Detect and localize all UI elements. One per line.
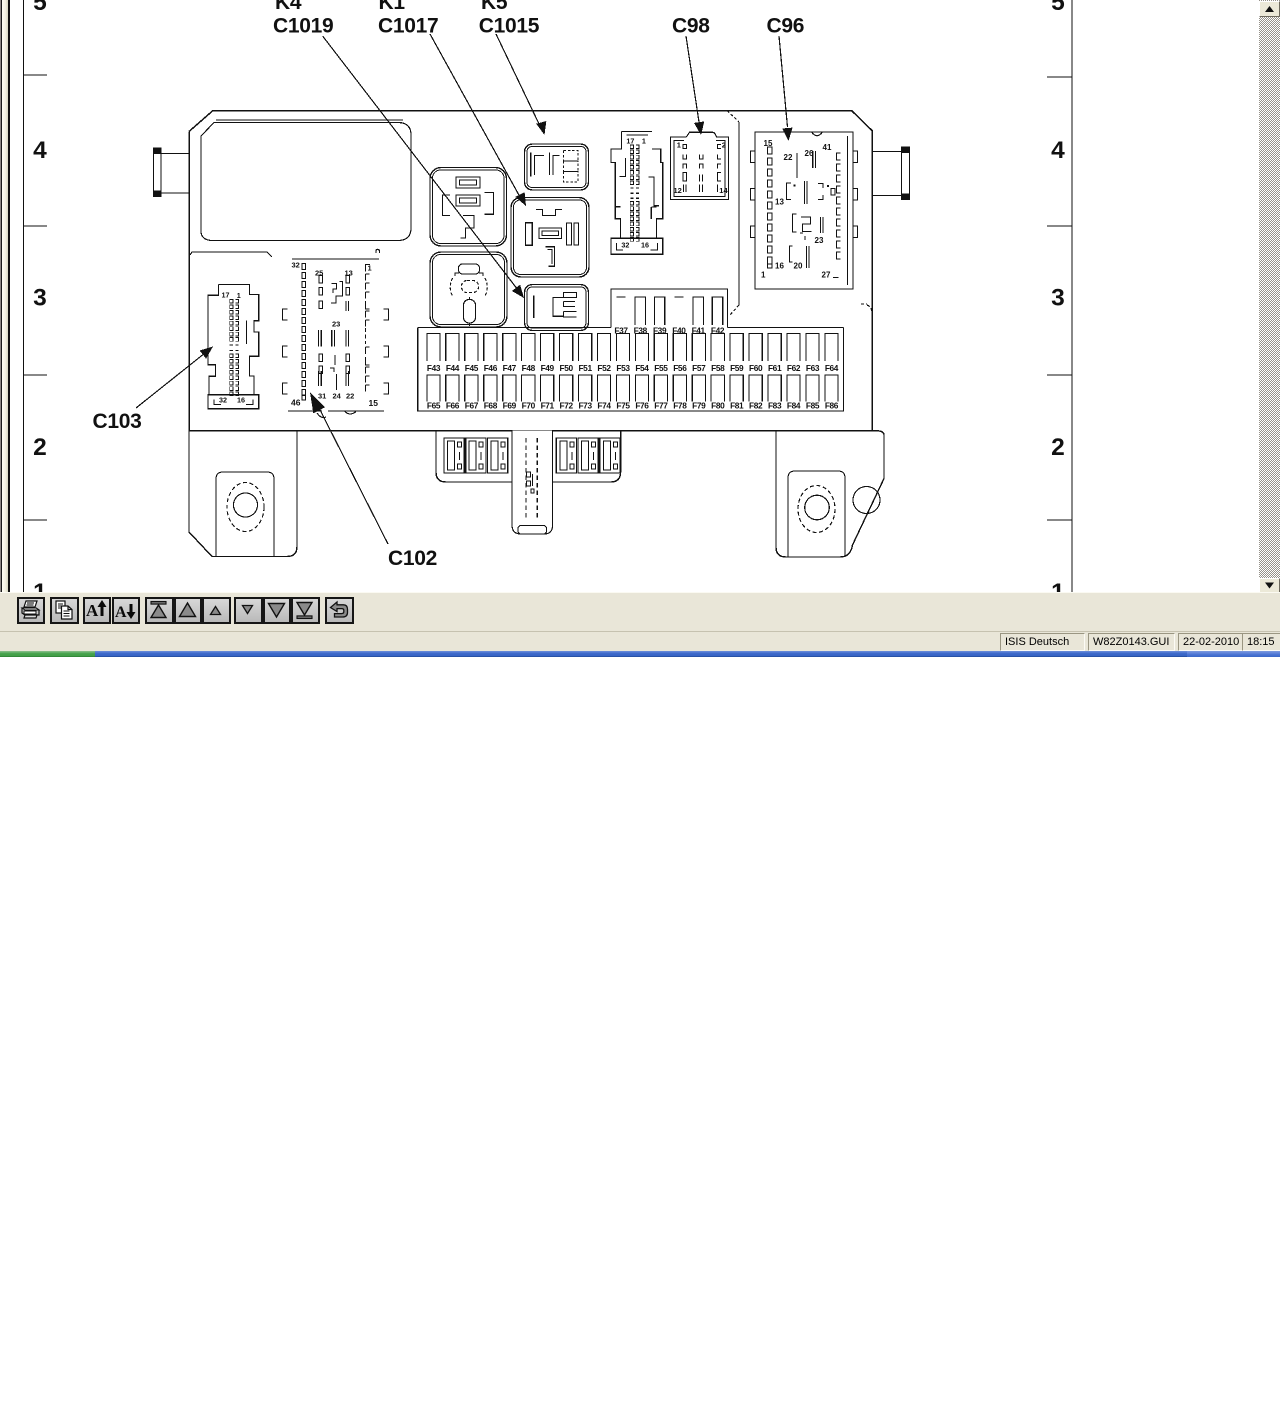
svg-text:12: 12 [674,186,682,195]
svg-text:F82: F82 [749,401,763,411]
svg-text:F69: F69 [503,401,517,411]
svg-text:22: 22 [346,392,354,401]
svg-text:F84: F84 [787,401,801,411]
svg-text:K4: K4 [275,0,302,14]
svg-text:F59: F59 [730,363,744,373]
svg-text:F52: F52 [597,363,611,373]
svg-text:C1019: C1019 [273,15,333,38]
svg-text:32: 32 [292,261,300,270]
svg-text:F53: F53 [616,363,630,373]
svg-text:16: 16 [775,262,784,271]
svg-text:17: 17 [626,137,634,146]
svg-text:F80: F80 [711,401,725,411]
svg-text:F78: F78 [673,401,687,411]
svg-text:F85: F85 [806,401,820,411]
svg-text:A: A [86,601,99,620]
svg-text:K5: K5 [481,0,508,14]
svg-text:32: 32 [621,241,629,250]
svg-text:F68: F68 [484,401,498,411]
svg-text:13: 13 [345,269,353,278]
svg-text:1: 1 [761,271,766,280]
svg-text:F79: F79 [692,401,706,411]
svg-text:15: 15 [369,398,379,408]
svg-text:14: 14 [719,186,728,195]
svg-text:22: 22 [784,153,793,162]
svg-text:2: 2 [722,141,726,150]
svg-text:1: 1 [1051,579,1065,593]
svg-text:1: 1 [642,137,646,146]
svg-text:F77: F77 [654,401,668,411]
svg-text:F64: F64 [825,363,839,373]
svg-text:F61: F61 [768,363,782,373]
svg-text:27: 27 [822,271,831,280]
svg-text:13: 13 [775,198,784,207]
svg-text:1: 1 [677,141,681,150]
svg-text:F83: F83 [768,401,782,411]
svg-text:F72: F72 [560,401,574,411]
svg-text:F63: F63 [806,363,820,373]
svg-text:F71: F71 [541,401,555,411]
svg-text:K1: K1 [379,0,406,14]
svg-text:31: 31 [318,392,326,401]
svg-text:F74: F74 [597,401,611,411]
svg-text:C98: C98 [672,15,710,38]
svg-text:F44: F44 [446,363,460,373]
svg-text:F58: F58 [711,363,725,373]
svg-text:F46: F46 [484,363,498,373]
svg-text:F56: F56 [673,363,687,373]
svg-text:F86: F86 [825,401,839,411]
svg-text:C103: C103 [93,410,142,433]
svg-text:1: 1 [33,579,47,593]
svg-text:F47: F47 [503,363,517,373]
svg-text:C96: C96 [767,15,805,38]
svg-text:C1017: C1017 [378,15,438,38]
svg-text:F76: F76 [635,401,649,411]
svg-text:F45: F45 [465,363,479,373]
svg-text:2: 2 [1051,434,1065,461]
svg-text:32: 32 [219,396,227,405]
svg-text:F67: F67 [465,401,479,411]
svg-text:17: 17 [222,291,230,300]
svg-text:3: 3 [1051,285,1065,312]
svg-text:20: 20 [794,262,803,271]
svg-text:C1015: C1015 [479,15,540,38]
svg-text:F54: F54 [635,363,649,373]
svg-text:F49: F49 [541,363,555,373]
svg-text:F57: F57 [692,363,706,373]
svg-text:2: 2 [33,434,47,461]
svg-text:F70: F70 [522,401,536,411]
svg-text:46: 46 [291,398,301,408]
svg-text:C102: C102 [388,547,437,570]
svg-text:26: 26 [805,149,814,158]
svg-text:15: 15 [764,139,773,148]
svg-text:F50: F50 [560,363,574,373]
svg-text:41: 41 [823,143,832,152]
svg-text:1: 1 [237,291,241,300]
svg-text:5: 5 [33,0,47,16]
svg-text:3: 3 [33,285,47,312]
svg-text:F75: F75 [616,401,630,411]
svg-text:23: 23 [332,320,340,329]
svg-text:F43: F43 [427,363,441,373]
svg-text:F66: F66 [446,401,460,411]
svg-text:F51: F51 [578,363,592,373]
svg-text:25: 25 [315,269,323,278]
svg-text:4: 4 [1051,137,1065,164]
svg-text:F60: F60 [749,363,763,373]
svg-text:1: 1 [368,264,372,273]
svg-text:F55: F55 [654,363,668,373]
svg-text:F62: F62 [787,363,801,373]
svg-text:4: 4 [33,137,47,164]
svg-text:16: 16 [641,241,649,250]
svg-text:5: 5 [1051,0,1065,16]
svg-text:16: 16 [237,396,245,405]
svg-text:A: A [115,604,127,621]
svg-text:F73: F73 [578,401,592,411]
svg-text:F48: F48 [522,363,536,373]
svg-text:23: 23 [815,236,824,245]
svg-text:24: 24 [333,392,342,401]
svg-text:F65: F65 [427,401,441,411]
svg-text:F81: F81 [730,401,744,411]
